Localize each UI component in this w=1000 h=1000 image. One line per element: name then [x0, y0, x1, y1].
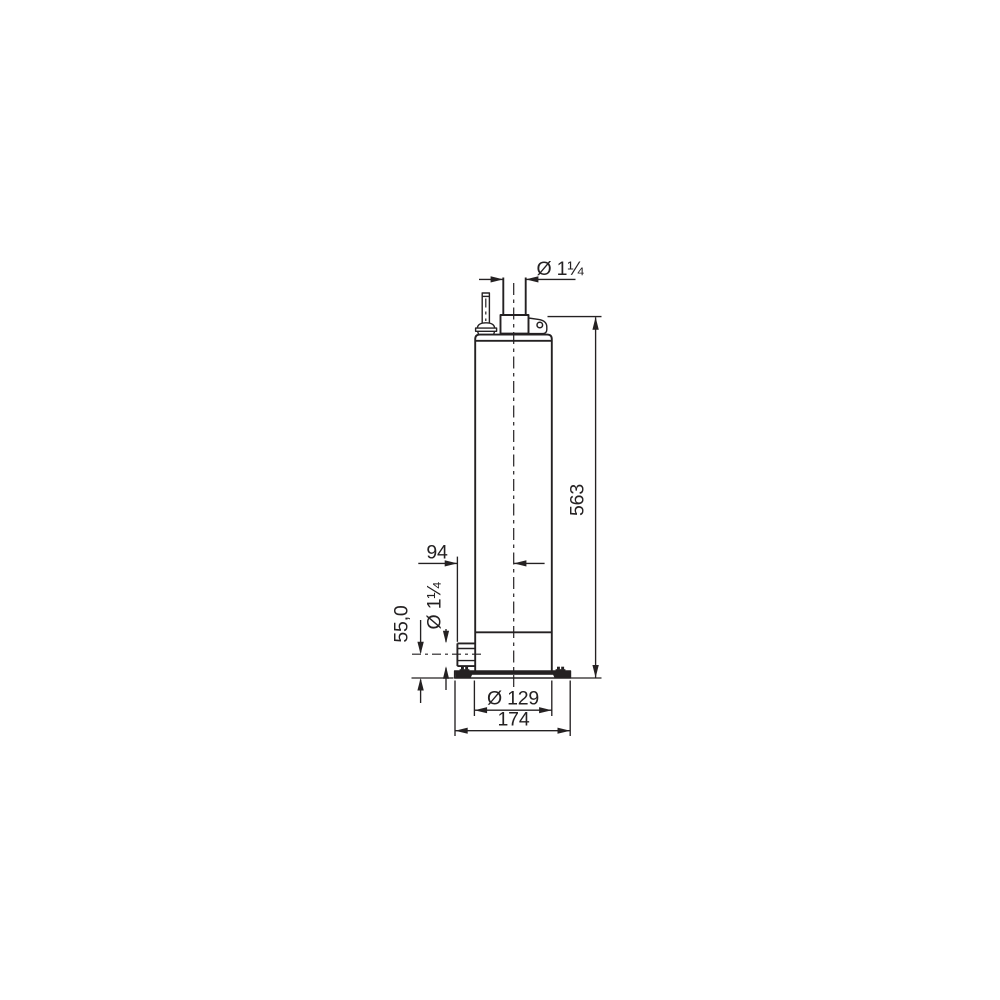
left-foot: [455, 671, 474, 678]
discharge-collar: [501, 315, 529, 334]
right-bolt: [556, 667, 566, 672]
right-foot: [551, 671, 570, 678]
left-bolt: [460, 667, 470, 672]
pump-dimensional-drawing: Ø 1¼ 563 94 Ø 1¼: [0, 0, 1000, 1000]
dim-label-discharge-diameter: Ø 1¼: [537, 258, 585, 280]
dim-label-inlet-diameter: Ø 1¼: [424, 582, 446, 630]
dim-inlet-diameter: Ø 1¼: [424, 582, 450, 690]
dim-label-body-diameter: Ø 129: [487, 688, 539, 710]
dim-overall-height: 563: [548, 317, 602, 678]
dim-label-base-width: 174: [498, 709, 530, 731]
cable-gland: [476, 293, 497, 335]
dim-label-center-to-inlet: 94: [426, 542, 448, 564]
drawing-canvas: Ø 1¼ 563 94 Ø 1¼: [0, 0, 1000, 1000]
discharge-pipe: [503, 278, 525, 316]
base-plate: [455, 667, 571, 678]
dim-discharge-diameter: Ø 1¼: [479, 258, 584, 283]
dim-label-overall-height: 563: [567, 484, 589, 516]
dim-label-inlet-height: 55,0: [391, 605, 413, 643]
bracket-hole: [537, 322, 543, 328]
cable-bracket: [529, 318, 547, 334]
